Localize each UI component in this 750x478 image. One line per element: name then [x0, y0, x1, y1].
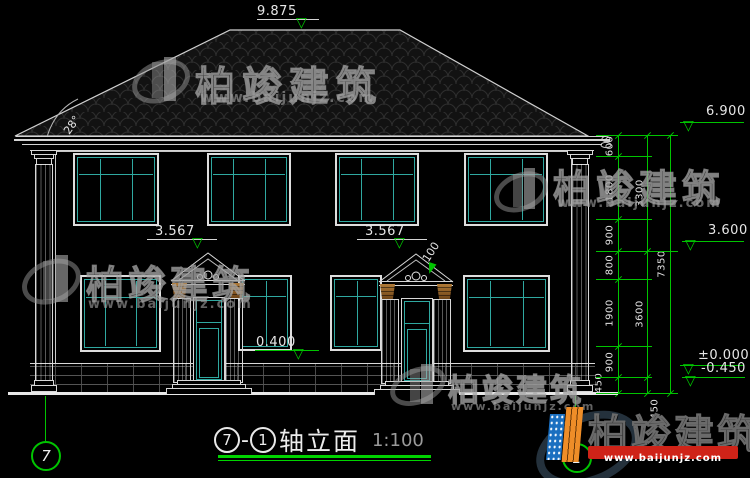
entrance-door-left: [169, 250, 247, 395]
axis-line-left: [45, 396, 46, 441]
dimension-chain-line: [618, 135, 619, 394]
axis-number: 7: [41, 447, 51, 465]
elevation-label-pediment-left: 3.567: [155, 224, 195, 239]
plinth-masonry: [30, 363, 595, 393]
pilaster-left: [31, 148, 57, 394]
title-axis-from: 7: [214, 427, 240, 453]
elevation-triangle-icon: ▽: [685, 374, 696, 388]
axis-bubble-7: 7: [31, 441, 61, 471]
elevation-triangle-icon: ▽: [293, 347, 304, 361]
corinthian-capital: [437, 284, 452, 299]
cornice-line: [22, 144, 602, 145]
pilaster-right: [567, 148, 593, 394]
drawing-title: 7 - 1 轴立面 1:100: [214, 422, 424, 458]
elevation-line: [255, 350, 319, 351]
dimension-chain-line: [647, 135, 648, 394]
elevation-triangle-icon: ▽: [296, 16, 307, 30]
logo-url-bar: www.baijunjz.com: [588, 446, 738, 459]
window-2f-3: [335, 153, 419, 226]
dimension-ext-line: [596, 346, 652, 347]
window-2f-2: [207, 153, 291, 226]
door-step: [374, 389, 460, 395]
window-1f-right: [463, 275, 550, 352]
corinthian-capital: [172, 283, 187, 298]
elevation-triangle-icon: ▽: [685, 238, 696, 252]
title-underline-thin: [218, 460, 431, 461]
window-2f-4: [464, 153, 548, 226]
cornice-line: [16, 136, 606, 137]
hipped-roof: [15, 30, 588, 136]
corinthian-capital: [229, 283, 244, 298]
door-leaf: [193, 297, 225, 383]
window-1f-mid-right: [330, 275, 382, 351]
elevation-triangle-icon: ▽: [192, 236, 203, 250]
entrance-door-right: [377, 251, 455, 396]
door-trim: [381, 299, 399, 384]
dimension-ext-line: [596, 279, 652, 280]
dimension-ext-line: [596, 219, 652, 220]
door-step: [166, 388, 252, 394]
title-underline: [218, 455, 431, 458]
dimension-ext-line: [596, 156, 652, 157]
title-scale: 1:100: [372, 430, 424, 451]
elevation-line: [257, 19, 319, 20]
window-2f-1: [73, 153, 159, 226]
brand-logo: 柏竣建筑 www.baijunjz.com: [530, 396, 750, 478]
elevation-line: [357, 239, 427, 240]
title-axis-to: 1: [250, 427, 276, 453]
elevation-triangle-icon: ▽: [394, 236, 405, 250]
elevation-line: [147, 239, 217, 240]
gutter-end-icon: [601, 142, 611, 147]
elevation-label-plinth: 0.400: [256, 335, 296, 350]
door-trim: [225, 298, 243, 383]
corinthian-capital: [380, 284, 395, 299]
elevation-label-ridge: 9.875: [257, 4, 297, 19]
elevation-label-ground: -0.450: [701, 361, 746, 376]
title-text: 轴立面: [279, 422, 360, 458]
ground-line: [8, 392, 618, 395]
dimension-ext-line: [596, 377, 652, 378]
pediment: [169, 250, 247, 282]
title-sep: -: [241, 428, 249, 453]
dimension-chain-line: [670, 135, 671, 394]
elevation-triangle-icon: ▽: [683, 119, 694, 133]
cornice-band: [14, 139, 610, 141]
elevation-label-eave: 6.900: [706, 104, 746, 119]
dimension-ext-line: [596, 393, 678, 394]
door-trim: [433, 299, 451, 384]
cad-elevation-drawing: 9.875 ▽ 3.567 ▽ 3.567 ▽ 0.400 ▽ 6.900 ▽ …: [0, 0, 750, 478]
dimension-ext-line: [596, 135, 678, 136]
dimension-ext-line: [596, 251, 678, 252]
elevation-label-floor2: 3.600: [708, 223, 748, 238]
door-leaf: [401, 298, 433, 384]
door-trim: [173, 298, 191, 383]
window-1f-left: [80, 275, 161, 352]
logo-url-text: www.baijunjz.com: [604, 453, 722, 464]
pediment: [377, 251, 455, 283]
